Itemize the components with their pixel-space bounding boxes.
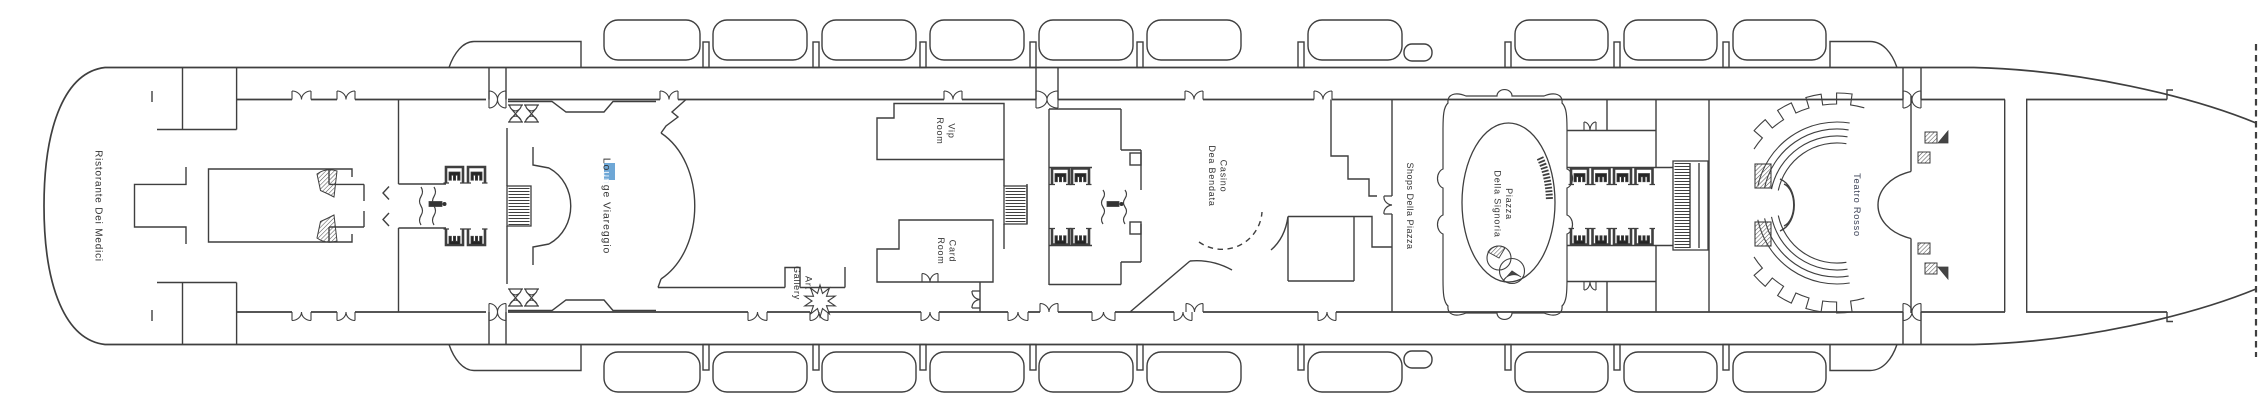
svg-text:CardRoom: CardRoom — [936, 237, 957, 264]
svg-text:Shops Della Piazza: Shops Della Piazza — [1405, 162, 1415, 249]
svg-text:Teatro Rosso: Teatro Rosso — [1852, 173, 1862, 237]
svg-text:Ristorante Dei Medici: Ristorante Dei Medici — [93, 150, 104, 262]
svg-text:Lounge Viareggio: Lounge Viareggio — [600, 158, 612, 255]
